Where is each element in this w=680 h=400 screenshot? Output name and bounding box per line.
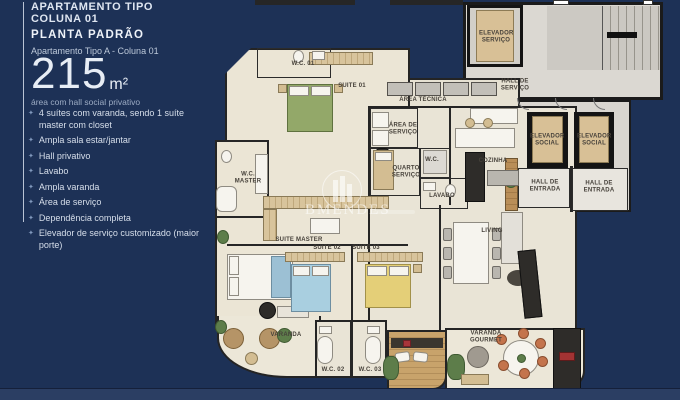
room-label-wc-master: W.C. MASTER (231, 172, 265, 185)
room-label-quarto-servico: QUARTO SERVIÇO (389, 166, 423, 179)
feature-list: ✦ 4 suítes com varanda, sendo 1 suíte ma… (28, 108, 208, 255)
room-label-hall-entrada-1: HALL DE ENTRADA (528, 180, 562, 193)
feature-item: ✦ 4 suítes com varanda, sendo 1 suíte ma… (28, 108, 208, 131)
sink-wc01 (312, 51, 325, 60)
feature-text: Hall privativo (39, 151, 91, 163)
pillow-quarto-servico (375, 152, 392, 161)
condenser-1 (387, 82, 413, 96)
stair-wall-symbol (607, 32, 637, 38)
wardrobe-suite03 (357, 252, 423, 262)
window-slit-2 (643, 0, 653, 5)
room-label-wc03: W.C. 03 (359, 367, 382, 374)
watermark-text: BMENDES (305, 202, 435, 219)
varanda-side-table (245, 352, 258, 365)
feature-text: Ampla sala estar/jantar (39, 135, 131, 147)
room-label-cozinha: COZINHA (479, 158, 508, 165)
room-label-suite03: SUITE 03 (352, 245, 380, 252)
pillow-suite01-a (289, 86, 309, 96)
suite02-03-divider (351, 246, 353, 322)
room-label-hall-servico: HALL DE SERVIÇO (498, 79, 532, 92)
stair-landing (547, 6, 602, 70)
sink-lavabo (423, 182, 436, 191)
watermark-building-bar-1 (333, 180, 338, 202)
diamond-bullet-icon: ✦ (28, 166, 34, 177)
area-value: 215 (31, 54, 107, 94)
kitchen-counter-top (470, 108, 518, 124)
room-label-living: LIVING (481, 228, 502, 235)
tub-wc02 (317, 336, 333, 364)
room-label-wc01: W.C. 01 (292, 61, 315, 68)
diamond-bullet-icon: ✦ (28, 135, 34, 146)
chair-suite-master (259, 302, 276, 319)
pillow-suite03-b (389, 266, 409, 276)
area-note: área com hall social privativo (31, 97, 140, 107)
feature-item: ✦ Área de serviço (28, 197, 208, 209)
page-title: APARTAMENTO TIPO COLUNA 01 (31, 1, 153, 25)
accent-line (23, 2, 24, 222)
area-unit: m² (109, 76, 128, 94)
room-label-suite01: SUITE 01 (338, 83, 366, 90)
room-label-wc-servico: W.C. (425, 157, 439, 164)
pillow-master-b (229, 277, 239, 296)
room-label-area-tecnica: ÁREA TÉCNICA (399, 97, 447, 104)
dining-chair-6 (492, 266, 501, 279)
feature-item: ✦ Ampla varanda (28, 182, 208, 194)
room-label-suite-master: SUITE MASTER (275, 237, 322, 244)
area-figure: 215 m² (31, 54, 128, 94)
feature-item: ✦ Lavabo (28, 166, 208, 178)
grill-red-module (559, 352, 575, 361)
feature-text: Ampla varanda (39, 182, 100, 194)
window-slit-1 (553, 0, 569, 5)
dining-chair-5 (492, 247, 501, 260)
bottom-accent-bar (0, 388, 680, 400)
gourmet-centerpiece (517, 354, 526, 363)
gourmet-armchair (467, 346, 489, 368)
room-label-elevador-social-2: ELEVADOR SOCIAL (577, 134, 611, 147)
feature-item: ✦ Dependência completa (28, 213, 208, 225)
watermark-subtext-scribble (373, 210, 415, 214)
room-label-varanda: VARANDA (271, 332, 302, 339)
info-sidebar: APARTAMENTO TIPO COLUNA 01 PLANTA PADRÃO… (0, 0, 215, 400)
floor-plan: W.C. 01 SUITE 01 ÁREA TÉCNICA ELEVADOR S… (215, 0, 680, 400)
room-label-hall-entrada-2: HALL DE ENTRADA (582, 181, 616, 194)
room-label-elevador-social-1: ELEVADOR SOCIAL (530, 134, 564, 147)
pillow-master-a (229, 256, 239, 275)
condenser-4 (471, 82, 497, 96)
tub-wc03 (365, 336, 381, 364)
sink-wc02 (319, 326, 332, 334)
closet-island (310, 218, 340, 234)
room-label-area-servico: ÁREA DE SERVIÇO (386, 123, 420, 136)
deck-cushion-2 (413, 351, 429, 363)
deck-plant (383, 356, 399, 380)
feature-item: ✦ Ampla sala estar/jantar (28, 135, 208, 147)
deck-bench (391, 338, 443, 348)
gourmet-chair-5 (519, 368, 530, 379)
kitchen-island (455, 128, 515, 148)
varanda-plant-2 (215, 320, 227, 334)
room-label-elevador-servico: ELEVADOR SERVIÇO (479, 31, 513, 44)
pillow-suite03-a (367, 266, 387, 276)
top-slab-wall-left (255, 0, 355, 5)
toilet-wc-master (221, 150, 232, 163)
nightstand-suite03 (413, 264, 422, 273)
diamond-bullet-icon: ✦ (28, 228, 34, 239)
feature-text: Dependência completa (39, 213, 131, 225)
room-label-wc02: W.C. 02 (322, 367, 345, 374)
wardrobe-suite02 (285, 252, 345, 262)
condenser-2 (415, 82, 441, 96)
brochure-page: APARTAMENTO TIPO COLUNA 01 PLANTA PADRÃO… (0, 0, 680, 400)
dining-chair-3 (443, 266, 452, 279)
gourmet-lounger (461, 374, 489, 385)
diamond-bullet-icon: ✦ (28, 213, 34, 224)
room-label-suite02: SUITE 02 (313, 245, 341, 252)
condenser-3 (443, 82, 469, 96)
feature-item: ✦ Hall privativo (28, 151, 208, 163)
watermark-building-bar-2 (340, 176, 345, 202)
diamond-bullet-icon: ✦ (28, 182, 34, 193)
deck-red-cushion (403, 340, 411, 347)
dining-chair-2 (443, 247, 452, 260)
feature-text: Elevador de serviço customizado (maior p… (39, 228, 208, 251)
feature-text: Área de serviço (39, 197, 102, 209)
gourmet-chair-4 (537, 356, 548, 367)
pillow-suite02-a (293, 266, 310, 276)
plant-suite-master (217, 230, 229, 244)
room-label-varanda-gourmet: VARANDA GOURMET (469, 331, 503, 344)
wcmaster-bottom-wall (215, 216, 267, 218)
kitchen-lower-counter (487, 170, 519, 186)
feature-item: ✦ Elevador de serviço customizado (maior… (28, 228, 208, 251)
diamond-bullet-icon: ✦ (28, 151, 34, 162)
page-title-line1: APARTAMENTO TIPO (31, 1, 153, 13)
gourmet-chair-3 (535, 338, 546, 349)
pillow-suite01-b (311, 86, 331, 96)
feature-text: 4 suítes com varanda, sendo 1 suíte mast… (39, 108, 208, 131)
sink-wc03 (367, 326, 380, 334)
diamond-bullet-icon: ✦ (28, 197, 34, 208)
living-left-wall (439, 205, 441, 330)
gourmet-chair-2 (518, 328, 529, 339)
throw-suite-master (271, 256, 291, 298)
wc02-03-divider (350, 320, 353, 378)
watermark-building-bar-3 (347, 184, 352, 202)
plan-type-subtitle: PLANTA PADRÃO (31, 29, 144, 41)
room-label-lavabo: LAVABO (429, 193, 455, 200)
stairwell (602, 6, 660, 70)
dining-chair-1 (443, 228, 452, 241)
feature-text: Lavabo (39, 166, 69, 178)
nightstand-suite01-a (278, 84, 287, 93)
diamond-bullet-icon: ✦ (28, 108, 34, 119)
pillow-suite02-b (312, 266, 329, 276)
stool-1 (465, 118, 475, 128)
top-slab-wall-right (390, 0, 463, 5)
wicker-chair-1 (223, 328, 244, 349)
stool-2 (483, 118, 493, 128)
building-chamfer (224, 47, 252, 75)
gourmet-chair-6 (498, 360, 509, 371)
bathtub-wc-master (216, 186, 237, 212)
page-title-line2: COLUNA 01 (31, 13, 153, 25)
wcmaster-top-wall (215, 140, 267, 142)
